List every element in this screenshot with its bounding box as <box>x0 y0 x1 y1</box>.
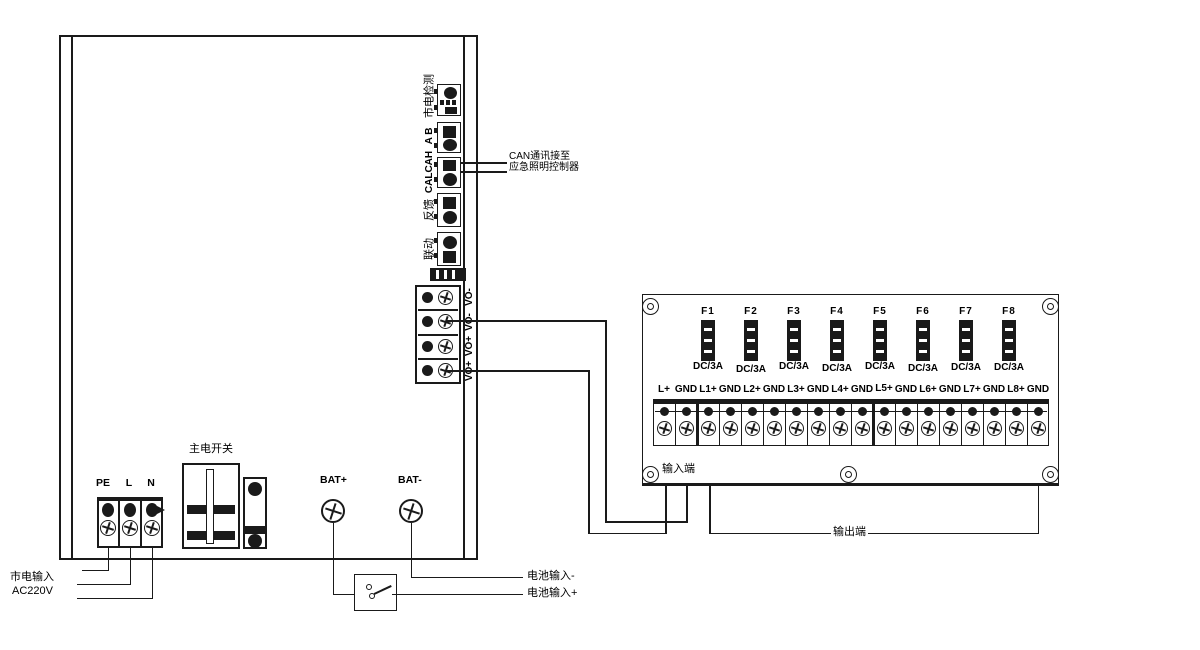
battery-input-plus-label: 电池输入+ <box>527 587 577 599</box>
bat-minus-label: BAT- <box>398 475 422 487</box>
module-label-calcah: CALCAH <box>425 151 435 193</box>
module-pin <box>434 177 437 182</box>
can-wire-2 <box>461 171 507 173</box>
n-terminal-arrow <box>157 506 165 514</box>
strip-screw <box>965 421 980 436</box>
strip-dot <box>946 407 955 416</box>
bat-minus-wire <box>411 577 523 579</box>
strip-dot <box>968 407 977 416</box>
wiring-diagram: 市电检测 A B CALCAH 反馈 联动 CAN通讯接至 应急照明控制器 <box>0 0 1200 650</box>
module-pin <box>434 105 437 110</box>
fuse-f8 <box>1002 320 1016 361</box>
enclosure-bottom-edge <box>59 558 478 560</box>
vo-label-2: VO- <box>465 313 475 331</box>
strip-screw <box>899 421 914 436</box>
can-pin-square <box>443 160 456 171</box>
strip-screw <box>723 421 738 436</box>
vo-screw <box>438 314 453 329</box>
strip-dot <box>902 407 911 416</box>
mains-detect-contacts <box>440 100 444 105</box>
mains-block-divider <box>118 501 120 546</box>
enclosure-wall-left-inner <box>71 35 73 560</box>
strip-screw <box>833 421 848 436</box>
terminal-label: GND <box>763 384 785 395</box>
panel-screw <box>642 298 659 315</box>
fuse-rating: DC/3A <box>822 363 852 374</box>
strip-dot <box>1034 407 1043 416</box>
strip-dot <box>660 407 669 416</box>
panel-screw <box>840 466 857 483</box>
vo-minus-wire <box>605 320 607 522</box>
vo-plus-wire <box>446 370 588 372</box>
vo-plus-wire <box>588 533 666 535</box>
strip-dot <box>858 407 867 416</box>
strip-dot <box>990 407 999 416</box>
vo-wire-dot <box>422 316 433 327</box>
terminal-label: L5+ <box>875 383 893 394</box>
fuse-rating: DC/3A <box>994 362 1024 373</box>
input-side-label: 输入端 <box>662 463 695 475</box>
fuse-f3 <box>787 320 801 361</box>
n-wire <box>77 598 153 600</box>
strip-dot <box>836 407 845 416</box>
vo-label-1: VO- <box>465 288 475 306</box>
vo-wire-dot <box>422 292 433 303</box>
module-pin <box>434 253 437 258</box>
fuse-f1 <box>701 320 715 361</box>
strip-screw <box>701 421 716 436</box>
terminal-label: L6+ <box>919 384 937 395</box>
vo-wire-dot <box>422 341 433 352</box>
strip-screw <box>1031 421 1046 436</box>
terminal-label: GND <box>807 384 829 395</box>
vo-minus-wire <box>605 521 687 523</box>
strip-screw <box>987 421 1002 436</box>
strip-screw <box>943 421 958 436</box>
fuse-rating: DC/3A <box>779 361 809 372</box>
enclosure-wall-left-outer <box>59 35 61 560</box>
n-wire <box>152 548 154 599</box>
strip-dot <box>792 407 801 416</box>
terminal-label: L4+ <box>831 384 849 395</box>
strip-screw <box>745 421 760 436</box>
vo-plus-wire <box>588 370 590 534</box>
main-switch-label: 主电开关 <box>189 443 233 455</box>
terminal-label: GND <box>675 384 697 395</box>
strip-screw <box>767 421 782 436</box>
mains-voltage-label: AC220V <box>12 585 53 597</box>
enclosure-top-edge <box>59 35 478 37</box>
strip-dot <box>726 407 735 416</box>
fuse-f6 <box>916 320 930 361</box>
mains-detect-pin-square <box>445 107 457 114</box>
terminal-label: L7+ <box>963 384 981 395</box>
terminal-label: L3+ <box>787 384 805 395</box>
vo-row-divider <box>418 309 458 311</box>
ab-pin-square <box>443 126 456 138</box>
module-pin <box>434 238 437 243</box>
l-wire <box>130 548 132 585</box>
terminal-label: GND <box>1027 384 1049 395</box>
strip-dot <box>704 407 713 416</box>
fuse-name: F2 <box>744 306 758 317</box>
panel-screw <box>642 466 659 483</box>
linkage-pin-square <box>443 251 456 263</box>
strip-dot <box>814 407 823 416</box>
aux-bar <box>245 526 266 534</box>
terminal-label: L2+ <box>743 384 761 395</box>
vo-row-divider <box>418 334 458 336</box>
pe-wire <box>82 570 109 572</box>
vo-label-3: VO+ <box>465 336 475 356</box>
module-pin <box>434 214 437 219</box>
battery-input-minus-label: 电池输入- <box>527 570 575 582</box>
terminal-label: L8+ <box>1007 384 1025 395</box>
mains-screw <box>144 520 160 536</box>
enclosure-wall-right-outer <box>476 35 478 560</box>
strip-screw <box>679 421 694 436</box>
mains-block-divider <box>140 501 142 546</box>
strip-dot <box>682 407 691 416</box>
fuse-rating: DC/3A <box>865 361 895 372</box>
strip-screw <box>921 421 936 436</box>
module-pin <box>434 89 437 94</box>
fuse-name: F3 <box>787 306 801 317</box>
mains-wire-dot <box>102 503 114 517</box>
vo-wire-dot <box>422 365 433 376</box>
l-wire <box>77 584 131 586</box>
output-bracket <box>868 533 1039 535</box>
strip-screw <box>855 421 870 436</box>
aux-contact-dot <box>248 534 262 548</box>
panel-screw <box>1042 298 1059 315</box>
module-pin <box>434 162 437 167</box>
mains-screw <box>122 520 138 536</box>
bat-plus-wire <box>333 523 335 595</box>
mains-wire-dot <box>124 503 136 517</box>
fuse-rating: DC/3A <box>693 361 723 372</box>
fuse-f7 <box>959 320 973 361</box>
feedback-pin-round <box>443 211 457 224</box>
fuse-name: F6 <box>916 306 930 317</box>
fuse-name: F7 <box>959 306 973 317</box>
fuse-name: F1 <box>701 306 715 317</box>
battery-switch-contact <box>366 584 372 590</box>
strip-screw <box>877 421 892 436</box>
fuse-rating: DC/3A <box>951 362 981 373</box>
bat-plus-screw <box>321 499 345 523</box>
vo-minus-wire <box>446 320 605 322</box>
module-pin <box>434 143 437 148</box>
fuse-f2 <box>744 320 758 361</box>
output-side-label: 输出端 <box>833 526 866 538</box>
end-bar-tick <box>436 270 439 279</box>
fuse-name: F4 <box>830 306 844 317</box>
can-wire-1 <box>461 162 507 164</box>
bat-minus-wire <box>411 523 413 578</box>
strip-bus-line <box>655 411 1047 413</box>
strip-screw <box>789 421 804 436</box>
mains-detect-contacts <box>452 100 456 105</box>
output-bracket <box>709 533 831 535</box>
strip-screw <box>657 421 672 436</box>
fuse-rating: DC/3A <box>736 364 766 375</box>
mains-detect-pin-round <box>444 87 457 99</box>
strip-dot <box>770 407 779 416</box>
terminal-label: GND <box>851 384 873 395</box>
mains-input-label: 市电输入 <box>10 571 54 583</box>
mains-screw <box>100 520 116 536</box>
linkage-pin-round <box>443 236 457 249</box>
terminal-label: GND <box>939 384 961 395</box>
strip-dot <box>880 407 889 416</box>
feedback-pin-square <box>443 197 456 209</box>
mains-detect-contacts <box>446 100 450 105</box>
fuse-f5 <box>873 320 887 361</box>
terminal-label: L+ <box>658 384 670 395</box>
strip-screw <box>1009 421 1024 436</box>
terminal-label: GND <box>719 384 741 395</box>
can-pin-round <box>443 173 457 186</box>
strip-dot <box>1012 407 1021 416</box>
bat-plus-wire <box>392 594 523 596</box>
fuse-name: F8 <box>1002 306 1016 317</box>
module-label-mains-detect: 市电检测 <box>425 74 436 118</box>
ab-pin-round <box>443 139 457 151</box>
l-label: L <box>126 478 132 490</box>
fuse-f4 <box>830 320 844 361</box>
main-switch-lever <box>206 469 214 544</box>
module-pin <box>434 199 437 204</box>
end-bar-tick <box>444 270 447 279</box>
n-label: N <box>147 478 155 490</box>
strip-dot <box>748 407 757 416</box>
vo-screw <box>438 339 453 354</box>
can-annotation-line2: 应急照明控制器 <box>509 162 579 173</box>
fuse-name: F5 <box>873 306 887 317</box>
pe-wire <box>108 548 110 571</box>
end-bar-tick <box>452 270 455 279</box>
pe-label: PE <box>96 478 110 490</box>
bat-minus-screw <box>399 499 423 523</box>
bat-plus-label: BAT+ <box>320 475 347 487</box>
fuse-rating: DC/3A <box>908 363 938 374</box>
vo-row-divider <box>418 358 458 360</box>
terminal-label: L1+ <box>699 384 717 395</box>
module-pin <box>434 128 437 133</box>
strip-screw <box>811 421 826 436</box>
vo-screw <box>438 290 453 305</box>
aux-contact-dot <box>248 482 262 496</box>
strip-dot <box>924 407 933 416</box>
can-annotation-line1: CAN通讯接至 <box>509 151 570 162</box>
terminal-label: GND <box>983 384 1005 395</box>
terminal-label: GND <box>895 384 917 395</box>
panel-screw <box>1042 466 1059 483</box>
mains-block-top-bar <box>97 497 163 501</box>
